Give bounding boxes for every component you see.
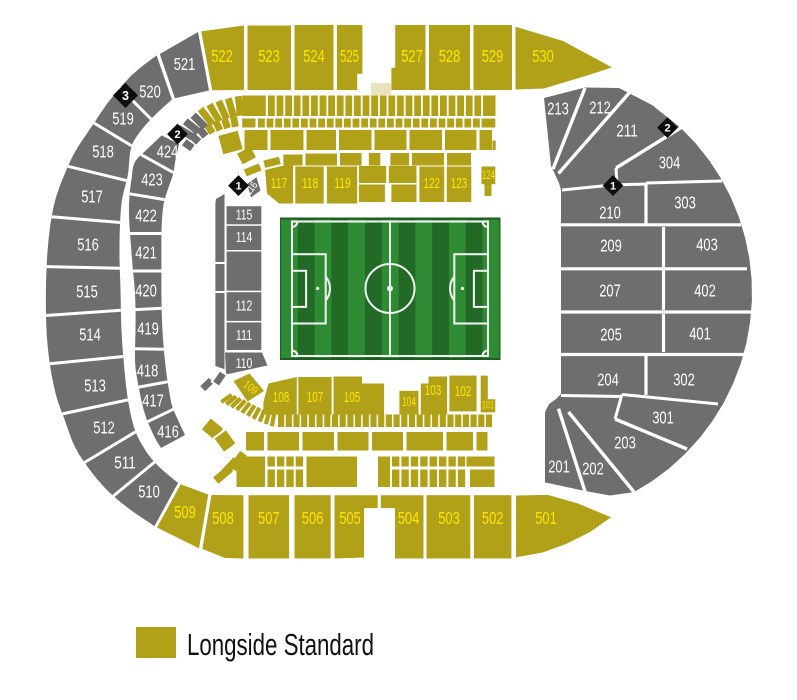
svg-text:211: 211: [616, 120, 638, 140]
svg-text:212: 212: [589, 97, 611, 117]
svg-text:203: 203: [614, 432, 636, 452]
svg-text:402: 402: [694, 280, 716, 300]
svg-text:513: 513: [84, 375, 106, 395]
svg-text:502: 502: [482, 508, 504, 528]
svg-text:519: 519: [112, 108, 134, 128]
svg-text:520: 520: [139, 81, 161, 101]
svg-text:104: 104: [402, 394, 416, 409]
svg-text:416: 416: [157, 421, 179, 441]
svg-text:529: 529: [482, 46, 504, 66]
svg-text:103: 103: [425, 382, 442, 399]
svg-text:417: 417: [142, 390, 164, 410]
svg-text:504: 504: [398, 508, 420, 528]
svg-text:105: 105: [344, 389, 361, 406]
svg-text:207: 207: [599, 280, 621, 300]
svg-text:304: 304: [659, 152, 681, 172]
svg-text:423: 423: [141, 169, 163, 189]
svg-text:201: 201: [548, 456, 570, 476]
svg-text:525: 525: [340, 46, 359, 66]
svg-text:514: 514: [79, 324, 101, 344]
svg-text:506: 506: [302, 508, 324, 528]
svg-text:101: 101: [482, 400, 494, 412]
svg-text:115: 115: [236, 207, 253, 224]
svg-text:507: 507: [258, 508, 280, 528]
svg-text:501: 501: [535, 508, 557, 528]
svg-text:202: 202: [582, 458, 604, 478]
svg-text:516: 516: [77, 234, 99, 254]
svg-text:209: 209: [600, 235, 622, 255]
svg-text:213: 213: [547, 98, 569, 118]
svg-text:521: 521: [174, 54, 196, 74]
svg-text:205: 205: [600, 324, 622, 344]
svg-text:515: 515: [76, 281, 98, 301]
svg-text:518: 518: [92, 141, 114, 161]
svg-text:530: 530: [532, 46, 554, 66]
svg-text:122: 122: [424, 175, 441, 192]
svg-text:303: 303: [674, 192, 696, 212]
svg-text:420: 420: [135, 280, 157, 300]
svg-text:517: 517: [81, 186, 103, 206]
svg-text:302: 302: [673, 369, 695, 389]
svg-text:528: 528: [439, 46, 461, 66]
svg-text:522: 522: [211, 46, 233, 66]
svg-text:508: 508: [212, 508, 234, 528]
svg-text:102: 102: [455, 383, 472, 400]
svg-text:114: 114: [236, 229, 253, 246]
svg-text:527: 527: [401, 46, 423, 66]
svg-text:210: 210: [599, 202, 621, 222]
svg-text:204: 204: [597, 369, 619, 389]
svg-text:509: 509: [174, 502, 196, 522]
svg-text:421: 421: [135, 242, 157, 262]
svg-text:2: 2: [664, 123, 670, 135]
svg-text:419: 419: [137, 318, 159, 338]
svg-text:3: 3: [122, 89, 129, 103]
svg-text:107: 107: [307, 389, 324, 406]
svg-text:111: 111: [236, 327, 253, 344]
svg-text:512: 512: [93, 417, 115, 437]
svg-text:Longside Standard: Longside Standard: [187, 628, 374, 662]
svg-text:2: 2: [174, 129, 180, 141]
svg-text:524: 524: [303, 46, 325, 66]
svg-text:510: 510: [138, 481, 160, 501]
svg-text:424: 424: [157, 141, 179, 161]
svg-text:523: 523: [258, 46, 280, 66]
svg-text:1: 1: [235, 181, 241, 193]
svg-text:112: 112: [236, 298, 253, 315]
svg-text:422: 422: [135, 205, 157, 225]
svg-text:418: 418: [137, 360, 159, 380]
svg-text:301: 301: [652, 407, 674, 427]
svg-text:108: 108: [273, 389, 290, 406]
svg-text:401: 401: [689, 323, 711, 343]
svg-text:511: 511: [114, 452, 136, 472]
svg-text:117: 117: [271, 175, 288, 192]
svg-text:110: 110: [236, 355, 253, 372]
svg-text:505: 505: [339, 508, 361, 528]
svg-text:403: 403: [696, 234, 718, 254]
svg-text:124: 124: [482, 168, 495, 182]
svg-text:118: 118: [302, 175, 319, 192]
svg-text:123: 123: [451, 175, 468, 192]
svg-text:503: 503: [438, 508, 460, 528]
svg-text:1: 1: [610, 181, 616, 193]
svg-text:119: 119: [334, 175, 351, 192]
